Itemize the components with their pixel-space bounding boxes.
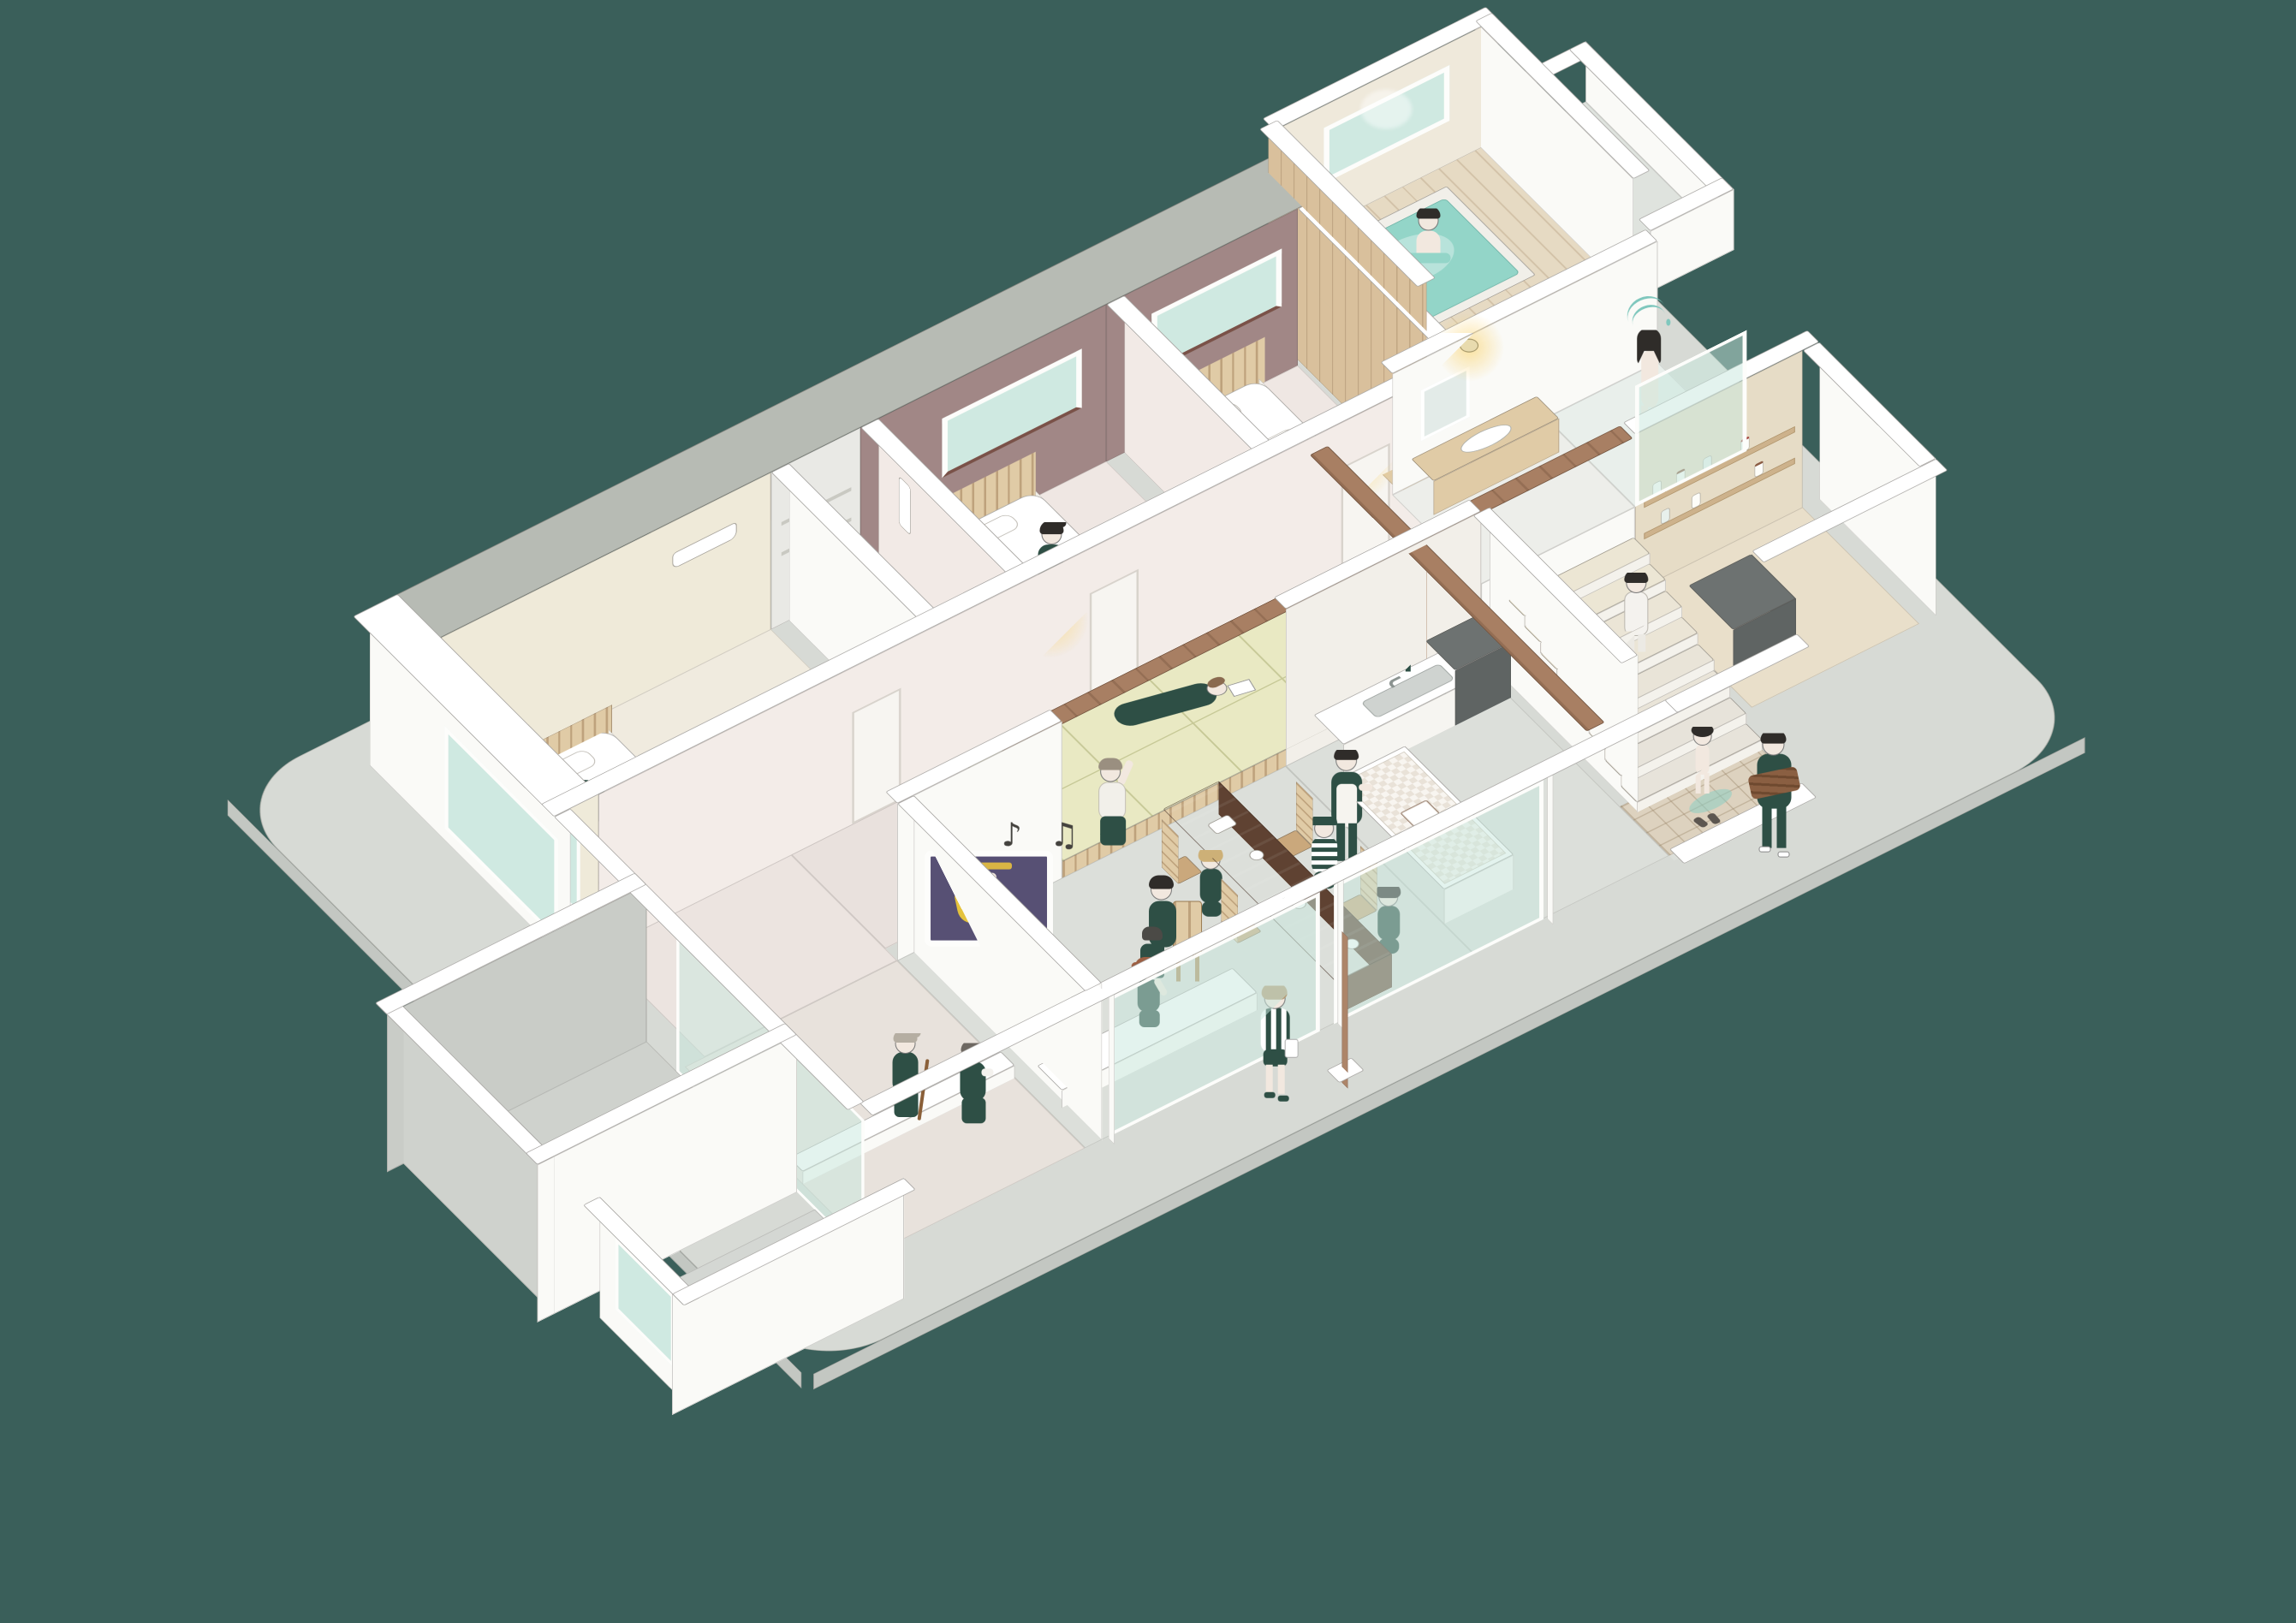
drop-icon	[1666, 319, 1670, 326]
child-after-bath	[1686, 727, 1719, 795]
body	[1696, 744, 1710, 775]
man-carrying-firewood	[1747, 734, 1800, 862]
cat-icon	[1142, 927, 1163, 941]
plate-icon	[1207, 814, 1238, 835]
hair	[1149, 876, 1174, 889]
hair	[1760, 730, 1786, 744]
legs	[1266, 1065, 1285, 1094]
facade-post	[1547, 768, 1553, 925]
hair	[1334, 747, 1359, 760]
ac-unit-icon	[672, 521, 736, 569]
steam-puff	[1360, 90, 1412, 129]
hair	[1098, 758, 1122, 770]
hair-bun	[1424, 201, 1434, 210]
bent-legs	[961, 1097, 985, 1123]
foot	[1264, 1092, 1276, 1098]
wood-corner-post	[1341, 931, 1347, 1089]
hair	[1692, 723, 1714, 737]
foot	[1278, 1096, 1289, 1102]
hair-bun	[1057, 519, 1066, 527]
book-icon	[1228, 679, 1257, 697]
torso	[1098, 782, 1126, 820]
bag-icon	[1285, 1039, 1299, 1058]
legs	[1762, 807, 1786, 848]
bath-steam	[1355, 83, 1424, 143]
ac-unit-icon	[899, 476, 911, 536]
isometric-house-illustration: ♪ ♫	[0, 0, 2296, 1623]
music-notes-glyphs: ♪ ♫	[1002, 816, 1087, 853]
facade-post	[1109, 987, 1115, 1144]
foot	[1777, 852, 1789, 858]
cap-icon	[1311, 813, 1337, 825]
firewood-icon	[1747, 766, 1801, 800]
shoe-icon	[1692, 816, 1710, 828]
arm	[1359, 784, 1372, 791]
hair	[1624, 570, 1648, 583]
shower-spray	[1621, 294, 1676, 342]
foot	[1758, 847, 1770, 853]
hair-bun	[912, 1028, 921, 1037]
sleeve	[981, 1068, 993, 1076]
bowl-icon	[1246, 848, 1267, 863]
legs	[1696, 773, 1710, 794]
shorts	[1264, 1049, 1288, 1067]
